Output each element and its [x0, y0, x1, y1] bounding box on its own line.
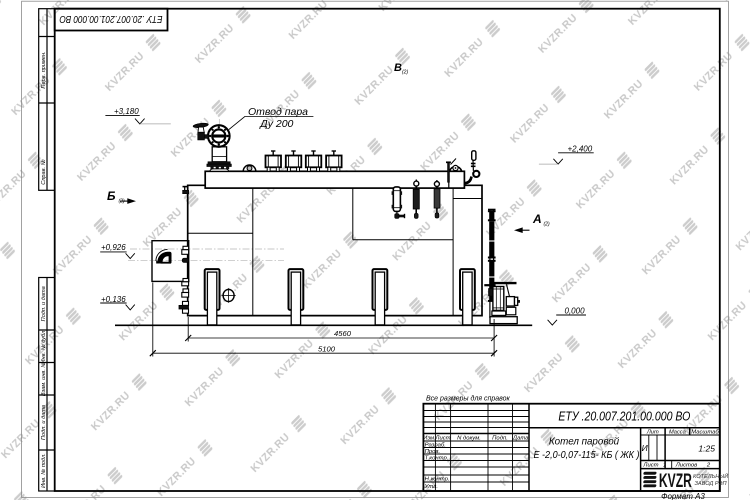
svg-text:И: И	[642, 443, 649, 453]
svg-text:ЗАВОД РЭП: ЗАВОД РЭП	[695, 481, 728, 487]
svg-text:(2): (2)	[402, 70, 408, 76]
svg-text:Н.контр.: Н.контр.	[425, 476, 450, 482]
svg-text:Подп. и дата: Подп. и дата	[41, 286, 47, 321]
svg-text:KVZR: KVZR	[659, 470, 692, 492]
svg-text:Котел паровой: Котел паровой	[549, 436, 620, 447]
svg-text:N докум.: N докум.	[457, 435, 481, 441]
svg-text:Листов: Листов	[675, 463, 697, 469]
svg-text:Лит: Лит	[646, 429, 659, 435]
svg-text:Масса: Масса	[669, 429, 686, 435]
svg-text:1: 1	[663, 463, 666, 469]
svg-text:А: А	[532, 212, 542, 226]
svg-text:Отвод пара: Отвод пара	[248, 106, 308, 118]
svg-text:КОТЕЛЬНЫЙ: КОТЕЛЬНЫЙ	[693, 472, 728, 480]
svg-text:В: В	[394, 62, 402, 74]
svg-text:+0,136: +0,136	[101, 295, 126, 304]
svg-text:Б: Б	[107, 189, 116, 203]
svg-text:2: 2	[706, 463, 711, 469]
svg-text:5100: 5100	[318, 344, 336, 353]
svg-text:Утв.: Утв.	[424, 484, 438, 490]
svg-text:0,000: 0,000	[565, 307, 586, 316]
svg-text:+2,400: +2,400	[568, 145, 593, 154]
svg-text:Т.контр.: Т.контр.	[425, 455, 449, 461]
svg-text:4560: 4560	[334, 329, 352, 338]
svg-text:Пров.: Пров.	[425, 449, 441, 455]
svg-text:Справ. №: Справ. №	[41, 159, 47, 184]
svg-text:Взам. инв. №: Взам. инв. №	[41, 361, 47, 396]
svg-text:Подп. и дата: Подп. и дата	[41, 405, 47, 440]
svg-text:Инв. № подл.: Инв. № подл.	[41, 453, 47, 488]
svg-text:Изм.: Изм.	[423, 435, 436, 441]
svg-text:Дата: Дата	[512, 435, 529, 441]
svg-text:Е -2,0-0,07-115- КБ ( ЖК ): Е -2,0-0,07-115- КБ ( ЖК )	[534, 450, 640, 461]
svg-text:1:25: 1:25	[698, 443, 715, 453]
svg-text:Ду 200: Ду 200	[259, 118, 293, 130]
svg-text:+3,180: +3,180	[114, 107, 139, 116]
svg-text:+0,926: +0,926	[101, 243, 126, 252]
svg-text:Подп.: Подп.	[492, 435, 508, 441]
svg-text:Формат А3: Формат А3	[661, 492, 705, 500]
svg-text:Перв. примен.: Перв. примен.	[41, 51, 47, 88]
svg-text:Лист: Лист	[642, 463, 658, 469]
svg-text:ЕТУ .20.007.201.00.000 ВО: ЕТУ .20.007.201.00.000 ВО	[558, 408, 690, 423]
svg-text:Все размеры для справок: Все размеры для справок	[426, 395, 511, 403]
svg-text:Инв. № дубл.: Инв. № дубл.	[41, 329, 47, 363]
svg-text:Разраб.: Разраб.	[425, 442, 446, 448]
svg-text:(2): (2)	[544, 222, 550, 228]
svg-text:Масштаб: Масштаб	[691, 429, 719, 435]
svg-text:ЕТУ .20.007.201.00.000 ВО: ЕТУ .20.007.201.00.000 ВО	[59, 13, 162, 24]
svg-text:Лист: Лист	[434, 435, 450, 441]
